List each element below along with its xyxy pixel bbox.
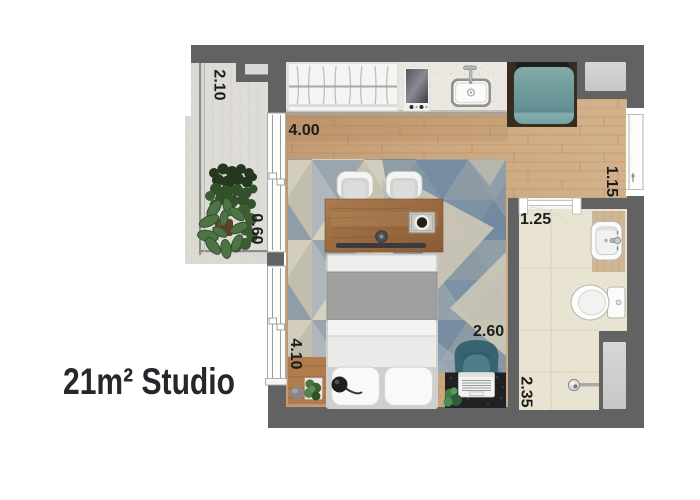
svg-text:2.60: 2.60: [473, 323, 504, 340]
svg-text:21m² Studio: 21m² Studio: [63, 361, 235, 402]
svg-text:1.15: 1.15: [603, 166, 620, 197]
svg-text:2.10: 2.10: [210, 69, 227, 100]
svg-text:0.60: 0.60: [248, 213, 265, 244]
svg-text:4.10: 4.10: [287, 338, 304, 369]
svg-text:2.35: 2.35: [517, 376, 534, 407]
svg-text:1.25: 1.25: [520, 211, 551, 228]
svg-text:4.00: 4.00: [289, 122, 320, 139]
